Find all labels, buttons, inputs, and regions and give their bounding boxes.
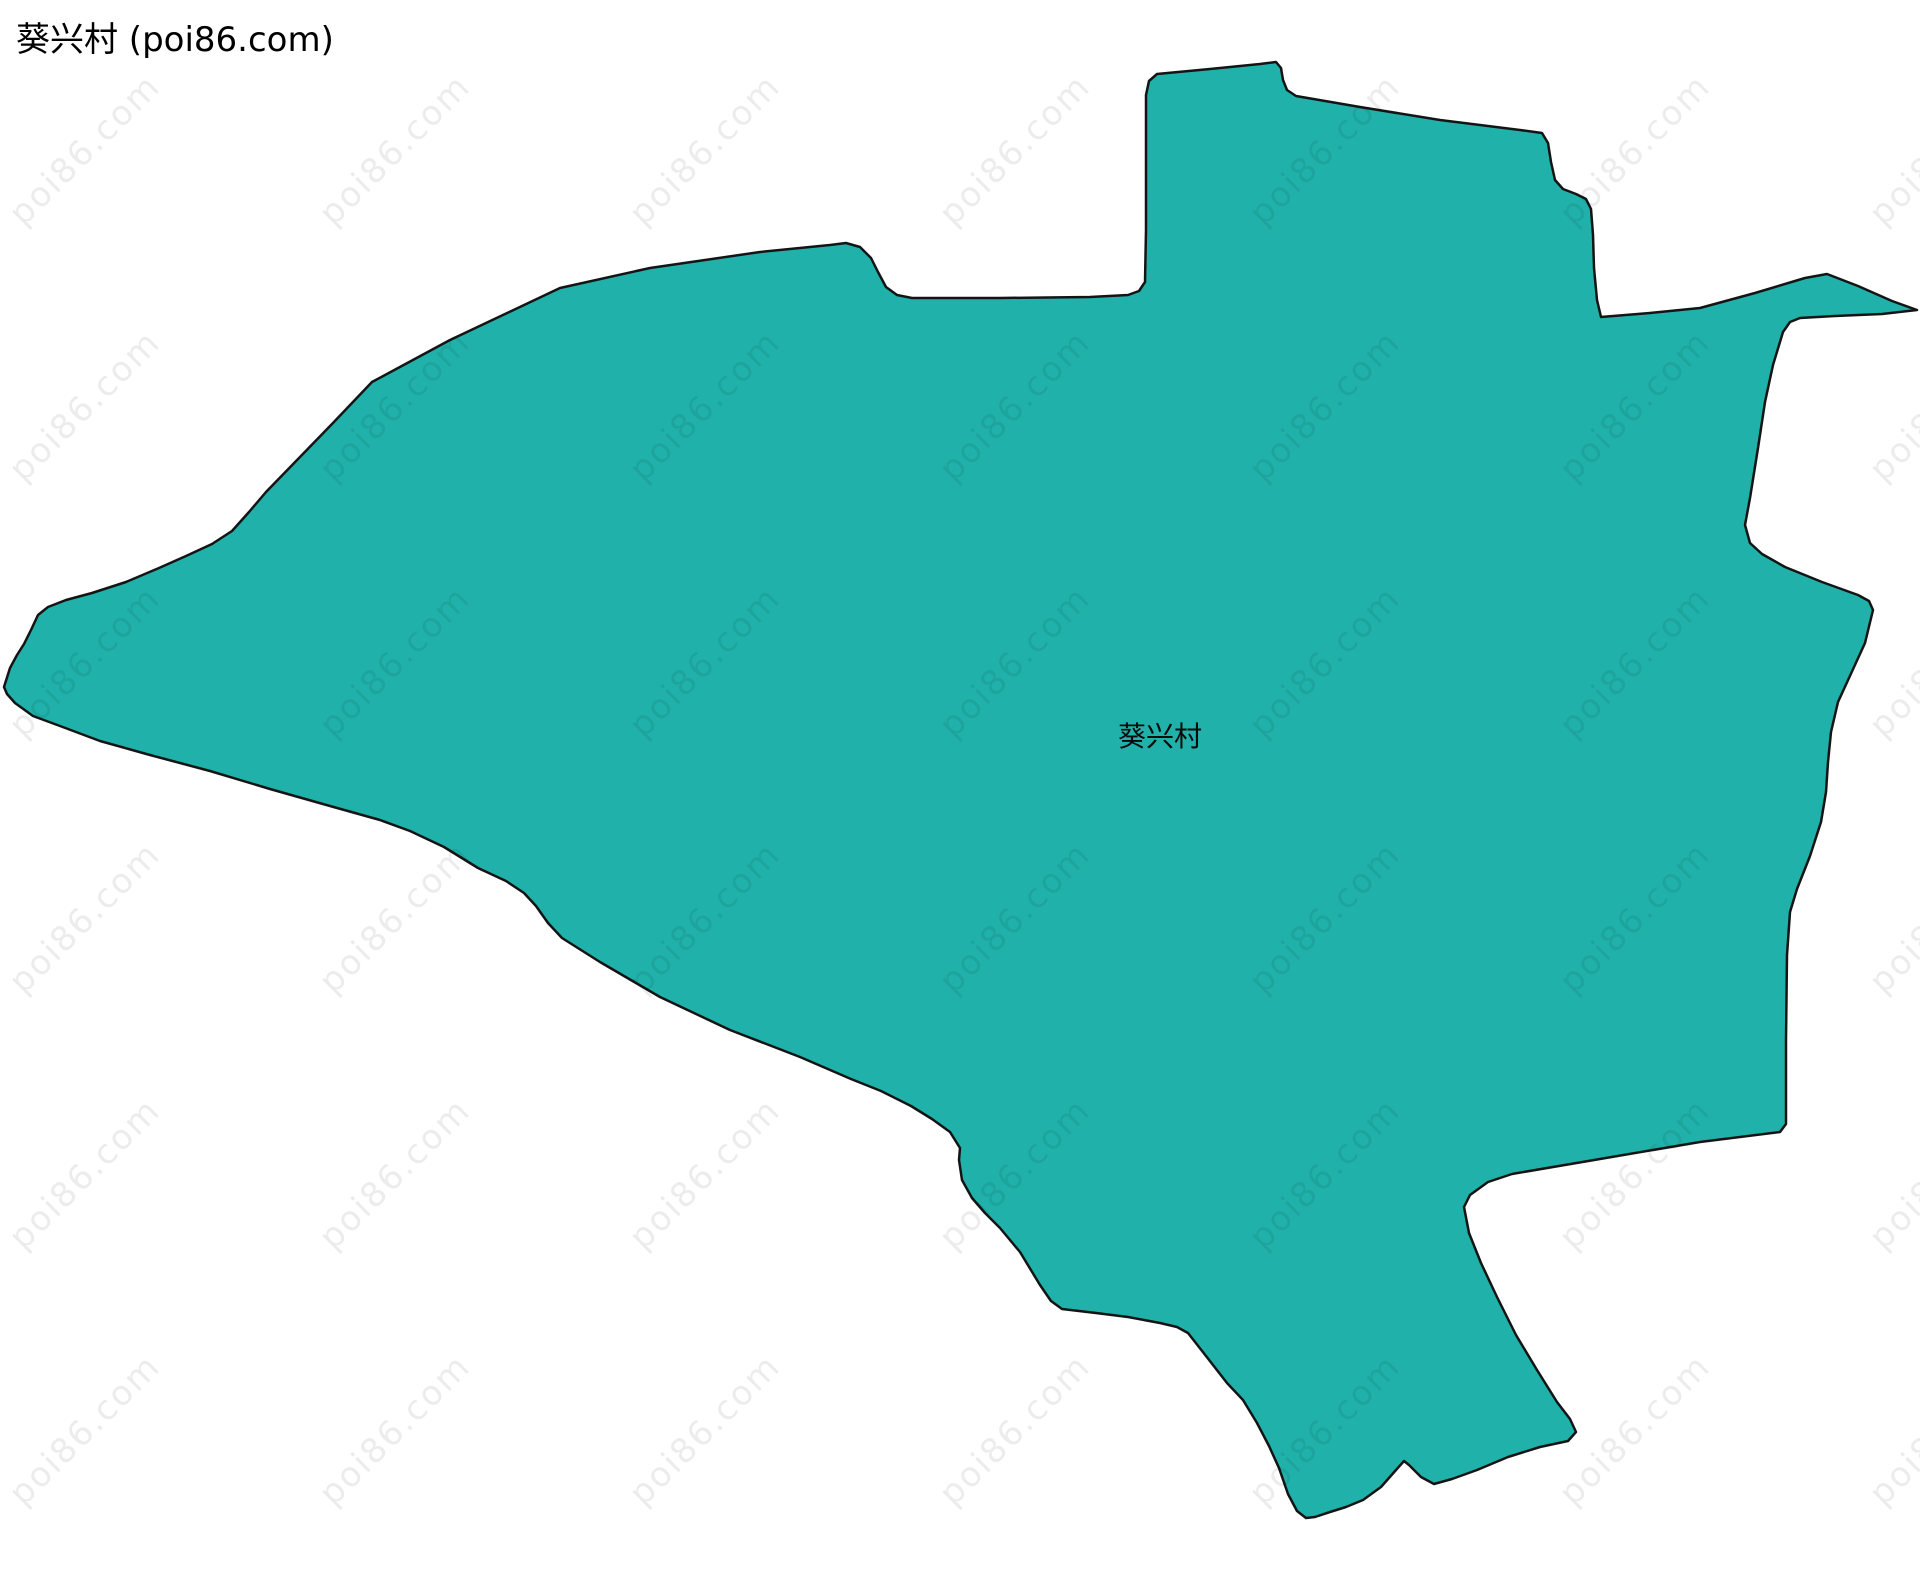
region-polygon: [4, 62, 1917, 1518]
map-svg: [0, 0, 1920, 1586]
region-label: 葵兴村: [1118, 715, 1202, 755]
page-title: 葵兴村 (poi86.com): [16, 12, 334, 61]
map-canvas: poi86.compoi86.compoi86.compoi86.compoi8…: [0, 0, 1920, 1586]
